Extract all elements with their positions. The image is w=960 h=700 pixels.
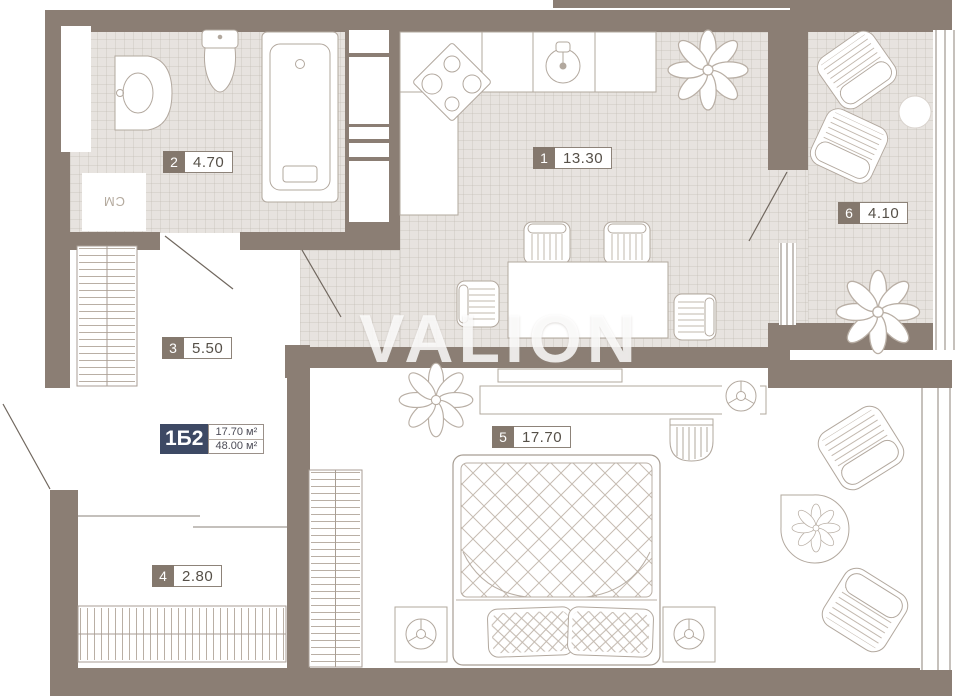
pillow	[567, 607, 654, 658]
room-label-hallway: 3 5.50	[162, 337, 232, 359]
bedroom-armchair	[813, 401, 909, 495]
closet-rack	[78, 606, 286, 662]
room-label-closet: 4 2.80	[152, 565, 222, 587]
room-number: 1	[533, 147, 555, 169]
balcony-armchair	[806, 104, 892, 187]
room-area: 13.30	[555, 147, 612, 169]
plant-icon	[668, 30, 748, 110]
floor-plan: СМ VALION 1 13.30 2 4.70 3 5.50 4 2.80 5…	[0, 0, 960, 700]
toilet	[202, 30, 238, 92]
room-label-bathroom: 2 4.70	[163, 151, 233, 173]
room-label-bedroom: 5 17.70	[492, 426, 571, 448]
bathtub	[262, 32, 338, 202]
side-table	[781, 495, 849, 563]
fan-icon	[722, 377, 760, 415]
room-number: 6	[838, 202, 860, 224]
dining-chair	[524, 222, 570, 264]
bedroom-wardrobe	[309, 470, 362, 667]
dining-chair	[604, 222, 650, 264]
room-label-balcony: 6 4.10	[838, 202, 908, 224]
closet-sliding-doors	[78, 516, 287, 527]
room-label-kitchen-living: 1 13.30	[533, 147, 612, 169]
laundry-basket	[670, 419, 713, 461]
balcony-table	[899, 96, 931, 128]
room-area: 4.10	[860, 202, 908, 224]
nightstand	[395, 607, 447, 662]
hallway-wardrobe	[77, 246, 137, 386]
room-area: 17.70	[514, 426, 571, 448]
room-number: 2	[163, 151, 185, 173]
apartment-living-area: 17.70 м²	[209, 425, 263, 440]
balcony-armchair	[812, 26, 901, 114]
apartment-code: 1Б2	[160, 424, 208, 454]
room-number: 3	[162, 337, 184, 359]
bed	[453, 455, 660, 665]
vanity-sink	[115, 56, 172, 130]
room-area: 2.80	[174, 565, 222, 587]
nightstand	[663, 607, 715, 662]
watermark: VALION	[300, 300, 700, 378]
washing-machine-label: СМ	[82, 173, 146, 231]
plant-icon	[836, 270, 919, 353]
room-area: 5.50	[184, 337, 232, 359]
pillow	[487, 607, 574, 658]
apartment-badge: 1Б2 17.70 м² 48.00 м²	[160, 424, 264, 454]
apartment-total-area: 48.00 м²	[209, 440, 263, 454]
room-number: 4	[152, 565, 174, 587]
bedroom-armchair	[817, 563, 913, 657]
room-number: 5	[492, 426, 514, 448]
room-area: 4.70	[185, 151, 233, 173]
